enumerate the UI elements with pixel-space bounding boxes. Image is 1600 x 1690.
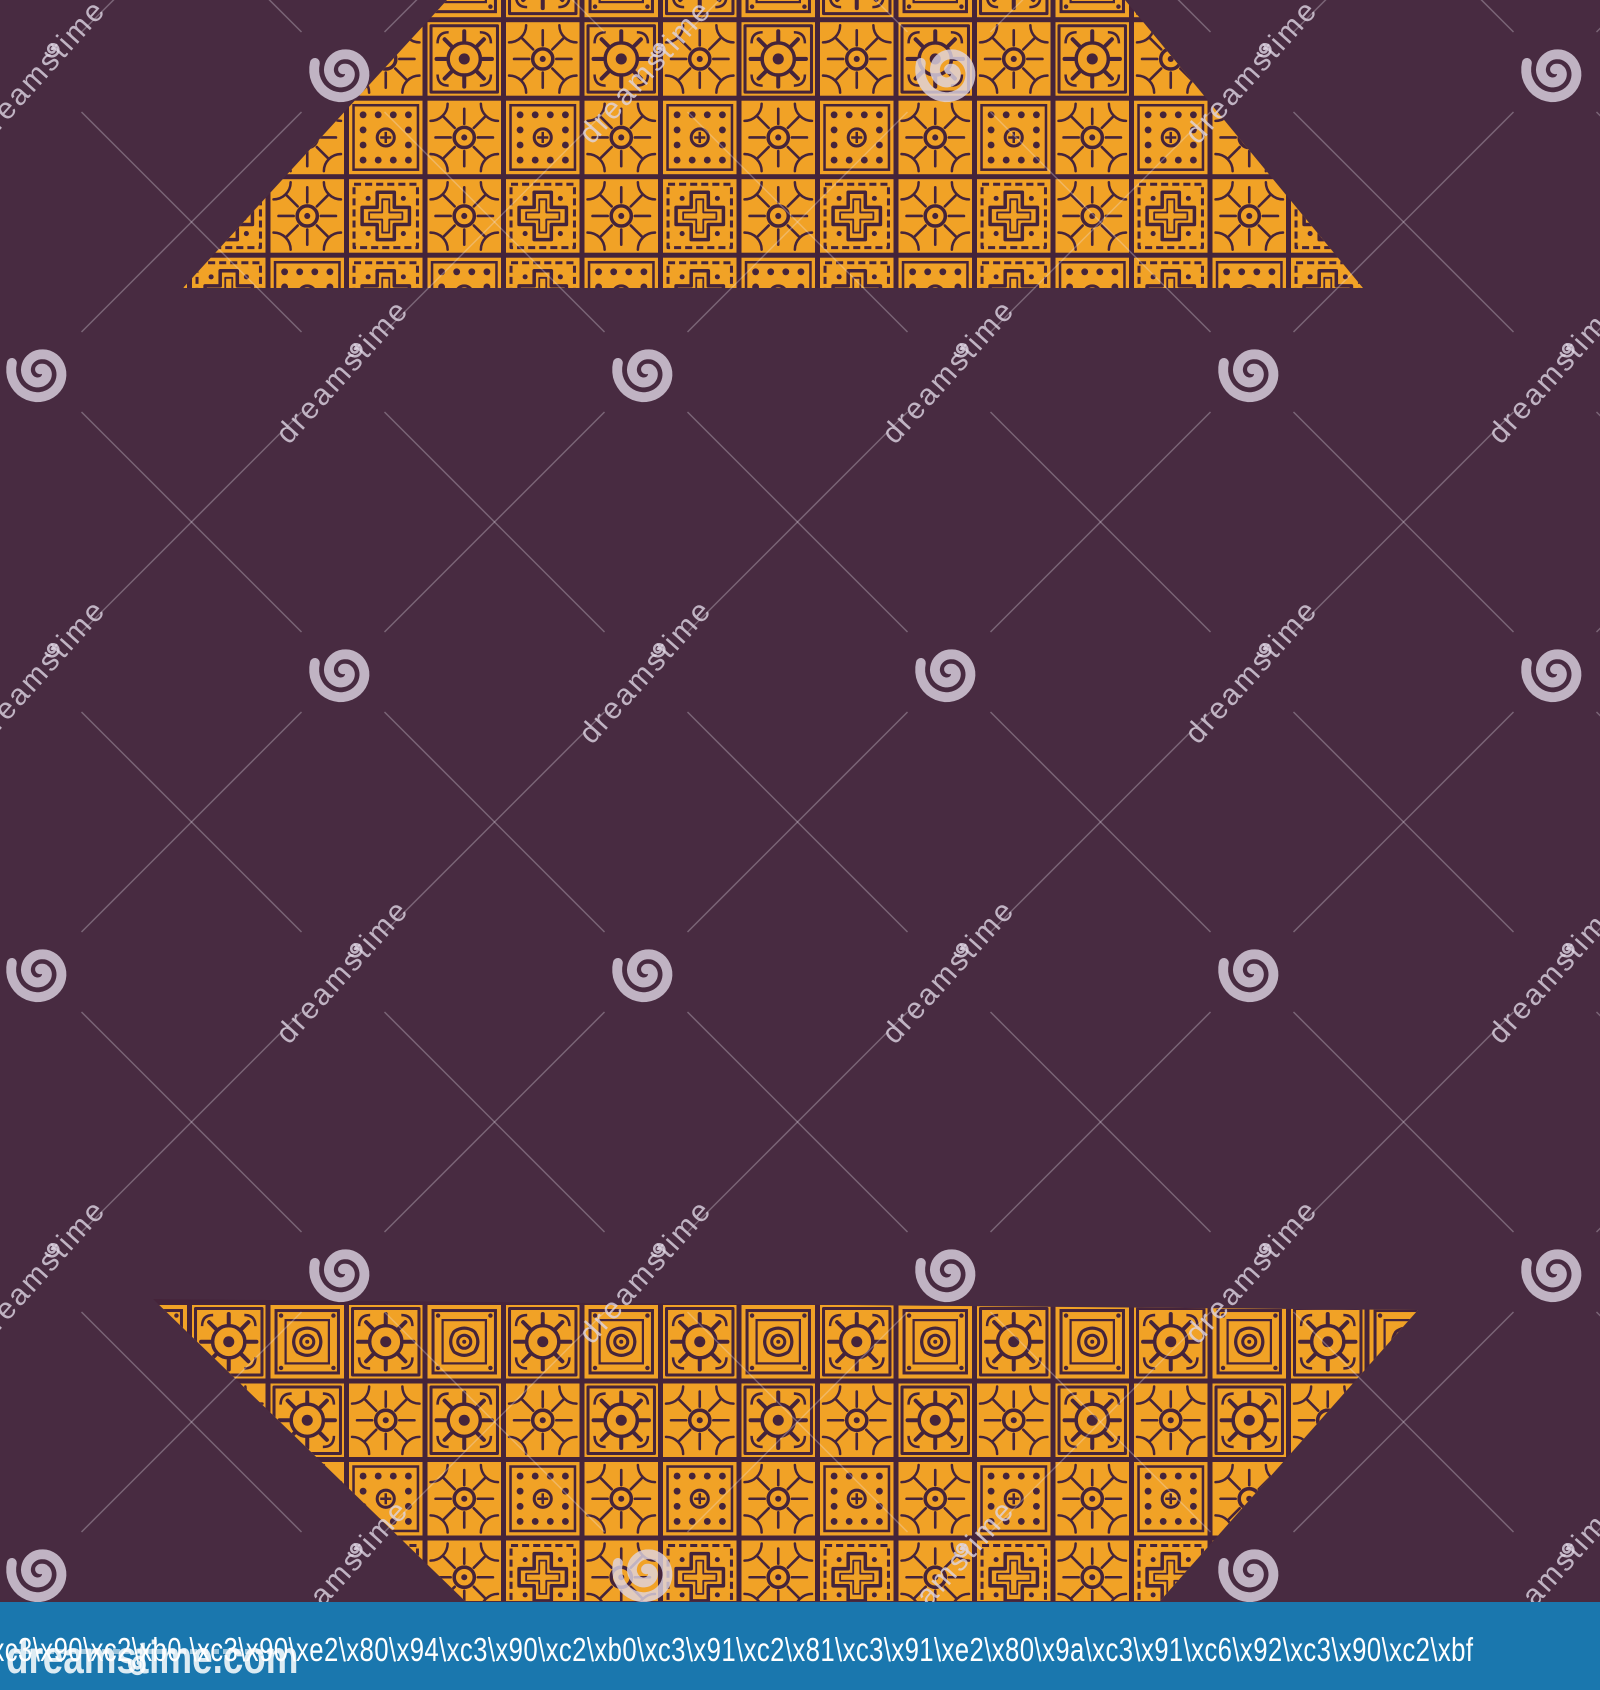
watermark-registered-spiral-icon <box>1555 937 1580 962</box>
mosaic-tile <box>663 1384 737 1458</box>
mosaic-tile <box>820 1305 894 1379</box>
mosaic-tile <box>585 258 659 290</box>
mosaic-tile <box>820 258 894 290</box>
mosaic-tile <box>1291 0 1365 17</box>
watermark-brand-text: dreamstime <box>1482 893 1600 1051</box>
watermark-registered-spiral-icon <box>40 1237 65 1262</box>
mosaic-tile <box>820 101 894 175</box>
mosaic-tile <box>349 0 423 17</box>
mosaic-tile <box>663 101 737 175</box>
mosaic-tile <box>977 1384 1051 1458</box>
mosaic-tile <box>663 1462 737 1536</box>
mosaic-tile <box>742 0 816 17</box>
mosaic-tile <box>506 101 580 175</box>
mosaic-tile <box>192 1384 266 1458</box>
watermark-diagonal-line <box>82 712 302 932</box>
mosaic-tile <box>820 179 894 253</box>
mosaic-tile <box>1291 22 1365 96</box>
mosaic-tile <box>349 101 423 175</box>
mosaic-tile <box>192 22 266 96</box>
mosaic-tile <box>114 1541 188 1611</box>
watermark-word-part1: dreams <box>1482 943 1584 1051</box>
mosaic-tile <box>977 0 1051 17</box>
mosaic-tile <box>349 258 423 290</box>
mosaic-tile <box>742 1462 816 1536</box>
mosaic-tile <box>114 179 188 253</box>
mosaic-tile <box>428 1384 502 1458</box>
mosaic-tile <box>271 22 345 96</box>
mosaic-tile <box>663 179 737 253</box>
mosaic-tile <box>271 1541 345 1611</box>
mosaic-tile <box>1134 179 1208 253</box>
tile-mosaic-top <box>0 0 1600 290</box>
watermark-diagonal-line <box>1294 712 1514 932</box>
watermark-brand-text: dreamstime <box>270 893 417 1051</box>
mosaic-tile <box>35 22 109 96</box>
watermark-diagonal-line <box>1597 1012 1600 1232</box>
mosaic-tile <box>271 0 345 17</box>
watermark-brand-text: dreamstime <box>876 293 1023 451</box>
mosaic-tile <box>506 1541 580 1611</box>
mosaic-tile <box>349 1305 423 1379</box>
mosaic-tile <box>1370 258 1444 290</box>
watermark-diagonal-line <box>991 412 1211 632</box>
watermark-diagonal-line <box>82 1012 302 1232</box>
watermark-word-part2: time <box>650 593 719 665</box>
mosaic-tile <box>977 258 1051 290</box>
watermark-diagonal-line <box>688 412 908 632</box>
watermark-registered-spiral-icon <box>949 337 974 362</box>
watermark-brand-text: dreamstime <box>876 893 1023 1051</box>
watermark-registered-spiral-icon <box>1252 1237 1277 1262</box>
mosaic-tile <box>1134 1305 1208 1379</box>
mosaic-tile <box>35 1305 109 1379</box>
mosaic-tile <box>1213 101 1287 175</box>
watermark-spiral-icon <box>1217 337 1287 407</box>
mosaic-tile <box>977 179 1051 253</box>
watermark-word-part2: time <box>1256 593 1325 665</box>
mosaic-tile <box>114 101 188 175</box>
mosaic-tile <box>899 179 973 253</box>
watermark-registered-spiral-icon <box>343 337 368 362</box>
mosaic-tile <box>271 1462 345 1536</box>
mosaic-tile <box>1213 1541 1287 1611</box>
mosaic-tile <box>742 1384 816 1458</box>
mosaic-tile <box>899 1384 973 1458</box>
watermark-word-part2: time <box>44 593 113 665</box>
mosaic-tile <box>114 258 188 290</box>
watermark-registered-spiral-icon <box>949 937 974 962</box>
mosaic-tile <box>192 179 266 253</box>
watermark-word-part2: time <box>1256 1193 1325 1265</box>
mosaic-tile <box>1134 1384 1208 1458</box>
dreamstime-logo: dreamstime.com <box>6 1634 298 1680</box>
mosaic-tile <box>1056 1462 1130 1536</box>
watermark-word-part2: time <box>1559 293 1600 365</box>
mosaic-tile <box>899 101 973 175</box>
mosaic-tile <box>271 1305 345 1379</box>
watermark-diagonal-line <box>991 1012 1211 1232</box>
mosaic-tile <box>663 258 737 290</box>
mosaic-tile <box>114 22 188 96</box>
watermark-diagonal-line <box>1294 412 1514 632</box>
watermark-word-part1: dreams <box>270 343 372 451</box>
mosaic-tile <box>820 1462 894 1536</box>
watermark-diagonal-line <box>1294 712 1514 932</box>
mosaic-tile <box>585 22 659 96</box>
watermark-spiral-icon <box>611 337 681 407</box>
mosaic-tile <box>271 101 345 175</box>
watermark-diagonal-line <box>991 712 1211 932</box>
mosaic-tile <box>35 258 109 290</box>
mosaic-tile <box>506 258 580 290</box>
mosaic-tile <box>114 1305 188 1379</box>
mosaic-tile <box>742 101 816 175</box>
mosaic-tile <box>35 1462 109 1536</box>
watermark-registered-spiral-icon <box>40 637 65 662</box>
mosaic-tile <box>35 1541 109 1611</box>
mosaic-tile <box>114 1462 188 1536</box>
mosaic-tile <box>428 258 502 290</box>
mosaic-tile <box>585 179 659 253</box>
watermark-word-part2: time <box>650 1193 719 1265</box>
watermark-word-part2: time <box>1559 893 1600 965</box>
mosaic-tile <box>428 1305 502 1379</box>
mosaic-tile <box>585 1541 659 1611</box>
mosaic-tile <box>1213 1462 1287 1536</box>
watermark-diagonal-line <box>688 412 908 632</box>
mosaic-tile <box>1134 101 1208 175</box>
mosaic-tile <box>1291 101 1365 175</box>
mosaic-tile <box>1291 1305 1365 1379</box>
mosaic-tile <box>1056 258 1130 290</box>
watermark-registered-spiral-icon <box>1252 637 1277 662</box>
mosaic-tile <box>820 0 894 17</box>
watermark-diagonal-line <box>1294 1012 1514 1232</box>
mosaic-tile <box>1291 1384 1365 1458</box>
watermark-diagonal-line <box>1597 712 1600 932</box>
watermark-spiral-icon <box>308 637 378 707</box>
mosaic-tile <box>506 1384 580 1458</box>
watermark-diagonal-line <box>82 1012 302 1232</box>
mosaic-tile <box>506 1462 580 1536</box>
mosaic-tile <box>742 258 816 290</box>
mosaic-tile <box>1134 22 1208 96</box>
watermark-word-part1: dreams <box>0 643 68 751</box>
watermark-word-part1: dreams <box>876 343 978 451</box>
watermark-word-part1: dreams <box>1179 643 1281 751</box>
mosaic-tile <box>585 1384 659 1458</box>
mosaic-tile <box>663 0 737 17</box>
mosaic-tile <box>663 1541 737 1611</box>
mosaic-tile <box>114 1384 188 1458</box>
watermark-word-part1: dreams <box>270 943 372 1051</box>
watermark-diagonal-line <box>1597 412 1600 632</box>
watermark-diagonal-line <box>688 712 908 932</box>
mosaic-tile <box>506 22 580 96</box>
tile-mosaic-bottom <box>0 1290 1600 1610</box>
watermark-diagonal-line <box>385 412 605 632</box>
mosaic-tile <box>1291 258 1365 290</box>
dreamstime-logo-part1: dreams <box>6 1631 137 1683</box>
mosaic-tile <box>271 1384 345 1458</box>
mosaic-tile <box>349 179 423 253</box>
watermark-word-part2: time <box>347 893 416 965</box>
mosaic-tile <box>349 1541 423 1611</box>
mosaic-tile <box>1370 0 1444 17</box>
mosaic-tile <box>1291 179 1365 253</box>
mosaic-tile <box>742 1541 816 1611</box>
mosaic-tile <box>1056 1305 1130 1379</box>
mosaic-tile <box>506 0 580 17</box>
watermark-word-part1: dreams <box>573 643 675 751</box>
mosaic-tile <box>35 179 109 253</box>
mosaic-tile <box>585 1305 659 1379</box>
mosaic-tile <box>899 1541 973 1611</box>
mosaic-tile <box>820 22 894 96</box>
mosaic-tile <box>742 22 816 96</box>
watermark-diagonal-line <box>1294 1012 1514 1232</box>
mosaic-tile <box>1134 0 1208 17</box>
mosaic-tile <box>742 179 816 253</box>
mosaic-tile <box>977 22 1051 96</box>
watermark-diagonal-line <box>688 712 908 932</box>
mosaic-tile <box>1213 179 1287 253</box>
watermark-word-part2: time <box>953 893 1022 965</box>
mosaic-tile <box>1213 0 1287 17</box>
mosaic-tile <box>428 1541 502 1611</box>
watermark-diagonal-line <box>688 1012 908 1232</box>
mosaic-tile <box>428 179 502 253</box>
mosaic-tile <box>1370 22 1444 96</box>
mosaic-tile <box>977 101 1051 175</box>
watermark-registered-spiral-icon <box>343 937 368 962</box>
watermark-word-part2: time <box>953 293 1022 365</box>
watermark-diagonal-line <box>1597 712 1600 932</box>
mosaic-tile <box>1056 179 1130 253</box>
mosaic-tile <box>1056 0 1130 17</box>
watermark-word-part1: dreams <box>1482 343 1584 451</box>
stock-image-canvas: dreamstimedreamstimedreamstimedreamstime… <box>0 0 1600 1690</box>
watermark-diagonal-line <box>1597 412 1600 632</box>
mosaic-tile <box>1213 22 1287 96</box>
watermark-brand-text: dreamstime <box>1179 593 1326 751</box>
watermark-spiral-icon <box>914 637 984 707</box>
mosaic-tile <box>1056 1541 1130 1611</box>
mosaic-tile <box>506 1305 580 1379</box>
mosaic-tile <box>742 1305 816 1379</box>
mosaic-tile <box>192 0 266 17</box>
mosaic-tile <box>428 1462 502 1536</box>
mosaic-tile <box>428 0 502 17</box>
watermark-diagonal-line <box>385 412 605 632</box>
mosaic-tile <box>1134 258 1208 290</box>
mosaic-tile <box>1134 1541 1208 1611</box>
mosaic-tile <box>1213 258 1287 290</box>
watermark-registered-spiral-icon <box>646 637 671 662</box>
mosaic-tile <box>585 1462 659 1536</box>
watermark-diagonal-line <box>385 1012 605 1232</box>
watermark-diagonal-line <box>385 712 605 932</box>
mosaic-tile <box>820 1541 894 1611</box>
watermark-diagonal-line <box>82 412 302 632</box>
mosaic-tile <box>506 179 580 253</box>
mosaic-tile <box>428 101 502 175</box>
watermark-spiral-icon <box>5 337 75 407</box>
mosaic-tile <box>899 22 973 96</box>
mosaic-tile <box>349 1462 423 1536</box>
watermark-spiral-icon <box>1217 937 1287 1007</box>
watermark-diagonal-line <box>991 712 1211 932</box>
watermark-spiral-icon <box>611 937 681 1007</box>
watermark-brand-text: dreamstime <box>0 593 113 751</box>
watermark-diagonal-line <box>688 1012 908 1232</box>
watermark-brand-text: dreamstime <box>573 593 720 751</box>
watermark-diagonal-line <box>1294 412 1514 632</box>
mosaic-tile <box>585 0 659 17</box>
watermark-spiral-icon <box>1520 637 1590 707</box>
mosaic-tile <box>1056 101 1130 175</box>
watermark-diagonal-line <box>1597 1012 1600 1232</box>
mosaic-tile <box>349 1384 423 1458</box>
mosaic-tile <box>114 0 188 17</box>
mosaic-tile <box>428 22 502 96</box>
dreamstime-logo-part2: time.com <box>137 1631 299 1683</box>
mosaic-tile <box>1370 1305 1444 1379</box>
mosaic-tile <box>899 1462 973 1536</box>
dreamstime-footer-bar: \xc3\x90\xc2\xb0 \xc3\x90\xe2\x80\x94\xc… <box>0 1602 1600 1690</box>
mosaic-tile <box>977 1305 1051 1379</box>
watermark-diagonal-line <box>385 712 605 932</box>
mosaic-tile <box>1370 1384 1444 1458</box>
mosaic-tile <box>192 258 266 290</box>
mosaic-tile <box>1291 1541 1365 1611</box>
watermark-diagonal-line <box>991 1012 1211 1232</box>
mosaic-tile <box>1056 1384 1130 1458</box>
mosaic-tile <box>349 22 423 96</box>
mosaic-tile <box>192 101 266 175</box>
mosaic-tile <box>899 0 973 17</box>
watermark-registered-spiral-icon <box>1555 337 1580 362</box>
mosaic-tile <box>663 1305 737 1379</box>
mosaic-tile <box>192 1541 266 1611</box>
watermark-diagonal-line <box>82 412 302 632</box>
mosaic-tile <box>899 258 973 290</box>
mosaic-tile <box>1134 1462 1208 1536</box>
watermark-word-part2: time <box>44 1193 113 1265</box>
mosaic-tile <box>977 1541 1051 1611</box>
mosaic-tile <box>1291 1462 1365 1536</box>
mosaic-tile <box>1370 101 1444 175</box>
mosaic-tile <box>820 1384 894 1458</box>
watermark-word-part1: dreams <box>876 943 978 1051</box>
mosaic-tile <box>35 101 109 175</box>
mosaic-tile <box>35 1384 109 1458</box>
mosaic-tile <box>1370 1541 1444 1611</box>
mosaic-tile <box>663 22 737 96</box>
mosaic-tile <box>977 1462 1051 1536</box>
mosaic-tile <box>1213 1305 1287 1379</box>
mosaic-tile <box>899 1305 973 1379</box>
mosaic-tile <box>585 101 659 175</box>
watermark-registered-spiral-icon <box>646 1237 671 1262</box>
mosaic-tile <box>1056 22 1130 96</box>
mosaic-tile <box>1370 1462 1444 1536</box>
watermark-diagonal-line <box>82 712 302 932</box>
watermark-diagonal-line <box>385 1012 605 1232</box>
mosaic-tile <box>1370 179 1444 253</box>
mosaic-tile <box>35 0 109 17</box>
watermark-brand-text: dreamstime <box>270 293 417 451</box>
watermark-spiral-icon <box>5 937 75 1007</box>
mosaic-tile <box>1213 1384 1287 1458</box>
mosaic-tile <box>192 1462 266 1536</box>
mosaic-tile <box>271 258 345 290</box>
mosaic-tile <box>271 179 345 253</box>
watermark-diagonal-line <box>991 412 1211 632</box>
dreamstime-spiral-icon <box>127 1651 148 1677</box>
watermark-word-part2: time <box>347 293 416 365</box>
watermark-brand-text: dreamstime <box>1482 293 1600 451</box>
mosaic-tile <box>192 1305 266 1379</box>
